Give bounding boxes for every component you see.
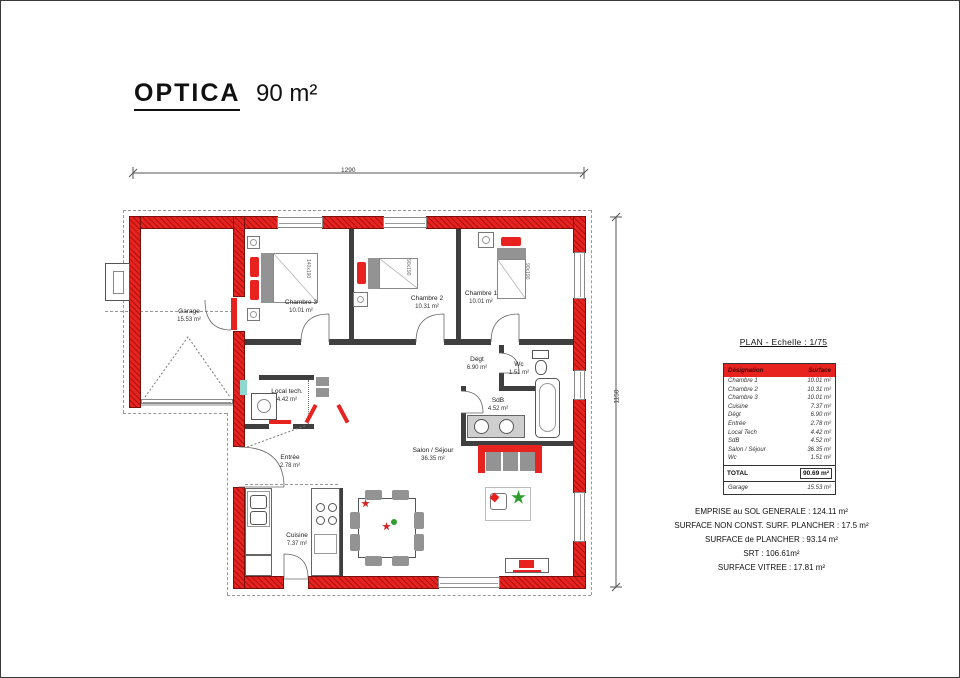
room-label-chambre1: Chambre 1 10.01 m²	[465, 289, 497, 307]
total-value: 90.69 m²	[800, 468, 832, 479]
page-title: OPTICA	[134, 79, 240, 111]
plan-scale-title: PLAN - Echelle : 1/75	[711, 337, 856, 347]
chair	[392, 556, 409, 566]
table-row: Local Tech4.42 m²	[724, 429, 835, 438]
sofa-cushion	[520, 452, 535, 471]
window-sdb	[574, 370, 585, 400]
bay-window-salon-east	[574, 492, 585, 542]
cooktop-burner	[316, 516, 325, 525]
cooktop-burner	[316, 503, 325, 512]
door-leaf-garage	[231, 298, 237, 330]
room-label-chambre2: Chambre 2 10.31 m²	[411, 294, 443, 312]
exterior-wall-right	[573, 298, 586, 371]
row-designation: Local Tech	[728, 429, 757, 438]
chair	[392, 490, 409, 500]
room-label-sdb: SdB 4.52 m²	[488, 396, 508, 414]
bed-chambre3	[273, 253, 318, 303]
boiler-unit	[316, 388, 329, 397]
surface-table: Désignation Surface Chambre 110.01 m² Ch…	[723, 363, 836, 495]
row-designation: Wc	[728, 454, 737, 463]
washing-machine-drum	[257, 399, 271, 413]
partition-ch3-ch2	[349, 229, 354, 339]
table-total-row: TOTAL 90.69 m²	[724, 465, 835, 481]
room-name: Chambre 3	[285, 298, 317, 307]
room-label-localtech: Local tech. 4.42 m²	[271, 387, 302, 405]
garage-value: 15.53 m²	[807, 482, 831, 494]
partition-wc	[499, 345, 504, 353]
row-designation: Chambre 1	[728, 377, 758, 386]
exterior-wall-right	[573, 216, 586, 253]
dimension-width-label: 1290	[339, 167, 357, 174]
total-label: TOTAL	[727, 467, 748, 480]
eaves-outline-left-lower	[227, 413, 228, 595]
sofa-backrest	[478, 445, 542, 452]
sink-bowl	[250, 495, 267, 509]
summary-line: EMPRISE au SOL GENERALE : 124.11 m²	[649, 505, 894, 519]
table-row: Cuisine7.37 m²	[724, 403, 835, 412]
row-surface: 10.01 m²	[807, 377, 831, 386]
bed-size-label: 90x190	[405, 259, 411, 275]
garage-door-opening	[141, 399, 233, 404]
chair	[365, 490, 382, 500]
kitchen-counter-east	[311, 488, 340, 576]
entree-cuisine-boundary	[245, 484, 338, 485]
sofa-armrest	[478, 452, 485, 473]
table-row: Entrée2.78 m²	[724, 420, 835, 429]
chair	[350, 534, 360, 551]
window-chambre1	[574, 252, 585, 299]
bed-pillow	[357, 262, 366, 284]
room-name: Chambre 1	[465, 289, 497, 298]
door-leaf-localtech	[269, 420, 291, 424]
cooktop-burner	[328, 503, 337, 512]
summary-line: SURFACE NON CONST. SURF. PLANCHER : 17.5…	[649, 519, 894, 533]
room-area: 6.90 m²	[467, 364, 487, 373]
row-surface: 4.52 m²	[811, 437, 831, 446]
room-label-wc: Wc 1.51 m²	[509, 360, 529, 378]
door-swing-cuisine	[284, 554, 308, 578]
door-swing-chambre2	[416, 314, 444, 342]
partition-hall	[329, 339, 416, 345]
room-label-degt: Dégt 6.90 m²	[467, 355, 487, 373]
chair	[414, 512, 424, 529]
table-row: Dégt6.90 m²	[724, 411, 835, 420]
room-area: 15.53 m²	[177, 316, 201, 325]
bed-headband	[497, 248, 526, 259]
exterior-wall-bottom	[308, 576, 439, 589]
summary-line: SURFACE VITREE : 17.81 m²	[649, 561, 894, 575]
sink	[499, 419, 514, 434]
toilet-bowl	[535, 360, 547, 375]
row-surface: 10.31 m²	[807, 386, 831, 395]
floor-plan-sheet: OPTICA 90 m² 1290 1150	[0, 0, 960, 678]
room-name: SdB	[488, 396, 508, 405]
table-row: Chambre 210.31 m²	[724, 386, 835, 395]
room-label-chambre3: Chambre 3 10.01 m²	[285, 298, 317, 316]
partition-hall	[444, 339, 491, 345]
partition-ch2-ch1	[456, 229, 461, 339]
partition-hall	[519, 339, 573, 345]
surface-table-header: Désignation Surface	[724, 364, 835, 377]
partition-localtech-bottom	[293, 424, 314, 429]
partition-hall	[245, 339, 301, 345]
window-chambre3	[277, 217, 323, 228]
water-heater	[240, 380, 247, 395]
row-designation: Salon / Séjour	[728, 446, 766, 455]
sofa-cushion	[486, 452, 501, 471]
bed-headband	[368, 258, 379, 289]
room-area: 4.42 m²	[271, 396, 302, 405]
sofa-cushion	[503, 452, 518, 471]
room-label-salon: Salon / Séjour 36.35 m²	[413, 446, 454, 464]
row-designation: Dégt	[728, 411, 741, 420]
row-surface: 10.01 m²	[807, 394, 831, 403]
kitchen-cabinet	[245, 555, 272, 576]
room-name: Wc	[509, 360, 529, 369]
room-area: 10.01 m²	[465, 298, 497, 307]
door-leaf-hall	[336, 404, 349, 424]
row-designation: SdB	[728, 437, 739, 446]
room-name: Cuisine	[286, 531, 308, 540]
dimension-height-label: 1150	[613, 388, 620, 406]
sink	[474, 419, 489, 434]
bed-chambre1	[497, 259, 526, 299]
row-designation: Chambre 3	[728, 394, 758, 403]
door-swing-entree	[239, 447, 284, 487]
toilet-tank	[532, 350, 549, 359]
bed-size-label: 140x190	[305, 259, 311, 278]
eaves-outline-bottom	[227, 595, 591, 596]
room-area: 36.35 m²	[413, 455, 454, 464]
partition-localtech-top	[259, 375, 314, 380]
door-leaf-hall	[305, 404, 318, 424]
room-area: 10.31 m²	[411, 303, 443, 312]
room-label-cuisine: Cuisine 7.37 m²	[286, 531, 308, 549]
room-label-garage: Garage 15.53 m²	[177, 307, 201, 325]
row-designation: Chambre 2	[728, 386, 758, 395]
page-title-area: 90 m²	[256, 80, 317, 108]
door-swing-chambre1	[491, 314, 519, 342]
header-surface: Surface	[808, 364, 831, 377]
room-name: Dégt	[467, 355, 487, 364]
exterior-wall-top	[129, 216, 278, 229]
eaves-outline-top	[123, 210, 591, 211]
bed-headband	[261, 253, 273, 303]
eaves-outline-right	[591, 210, 592, 595]
door-swing-sdb	[461, 391, 483, 413]
boiler-unit	[316, 377, 329, 386]
room-label-entree: Entrée 2.78 m²	[280, 453, 300, 471]
window-chambre2	[383, 217, 427, 228]
door-swing-garage	[205, 300, 231, 330]
bed-chambre2	[379, 258, 418, 289]
garage-west-wall	[129, 216, 141, 408]
oven	[314, 534, 337, 554]
partition-localtech-bottom	[245, 424, 269, 429]
row-surface: 1.51 m²	[811, 454, 831, 463]
summary-line: SRT : 106.61m²	[649, 547, 894, 561]
partition-wc	[499, 373, 504, 386]
bathtub-inner	[539, 383, 556, 432]
table-row: Chambre 310.01 m²	[724, 394, 835, 403]
dimension-line-top	[129, 167, 588, 179]
row-designation: Cuisine	[728, 403, 748, 412]
room-name: Entrée	[280, 453, 300, 462]
plant-symbol	[391, 519, 397, 525]
door-swing-chambre3	[301, 314, 329, 342]
eaves-outline-garage-bottom	[123, 413, 227, 414]
table-row: SdB4.52 m²	[724, 437, 835, 446]
room-area: 4.52 m²	[488, 405, 508, 414]
west-wall	[233, 487, 245, 589]
sink-bowl	[250, 511, 267, 525]
header-designation: Désignation	[728, 364, 763, 377]
table-garage-row: Garage 15.53 m²	[724, 481, 835, 494]
meter-box-inner	[113, 271, 124, 294]
chair	[414, 534, 424, 551]
room-name: Salon / Séjour	[413, 446, 454, 455]
sofa-armrest	[535, 452, 542, 473]
table-row: Chambre 110.01 m²	[724, 377, 835, 386]
bed-pillow	[501, 237, 521, 246]
bed-size-label: 90x190	[524, 263, 530, 279]
west-wall	[233, 216, 245, 297]
cooktop-burner	[328, 516, 337, 525]
partition-wc-sdb	[499, 386, 536, 391]
lamp	[250, 311, 257, 318]
lamp	[250, 239, 257, 246]
surface-summary: EMPRISE au SOL GENERALE : 124.11 m² SURF…	[649, 505, 894, 575]
chair	[350, 512, 360, 529]
exterior-wall-top	[322, 216, 384, 229]
bay-window-salon-south	[438, 577, 500, 588]
room-area: 10.01 m²	[285, 307, 317, 316]
room-area: 2.78 m²	[280, 462, 300, 471]
row-designation: Entrée	[728, 420, 746, 429]
room-area: 7.37 m²	[286, 540, 308, 549]
room-name: Chambre 2	[411, 294, 443, 303]
row-surface: 7.37 m²	[811, 403, 831, 412]
table-row: Wc1.51 m²	[724, 454, 835, 463]
row-surface: 2.78 m²	[811, 420, 831, 429]
garage-door-swing	[145, 337, 230, 397]
section-dashed-line	[105, 311, 233, 312]
chair	[365, 556, 382, 566]
row-surface: 6.90 m²	[811, 411, 831, 420]
garage-label: Garage	[728, 482, 748, 494]
room-name: Garage	[177, 307, 201, 316]
room-area: 1.51 m²	[509, 369, 529, 378]
exterior-wall-right	[573, 399, 586, 493]
room-name: Local tech.	[271, 387, 302, 396]
partition-sdb	[461, 413, 466, 441]
exterior-wall-top	[426, 216, 586, 229]
row-surface: 36.35 m²	[807, 446, 831, 455]
tv-soundbar	[513, 570, 541, 572]
bed-pillow	[250, 257, 259, 277]
summary-line: SURFACE de PLANCHER : 93.14 m²	[649, 533, 894, 547]
lamp	[482, 236, 490, 244]
lamp	[357, 296, 364, 303]
tv	[519, 560, 534, 568]
exterior-wall-bottom	[499, 576, 586, 589]
table-row: Salon / Séjour36.35 m²	[724, 446, 835, 455]
partition-sdb	[461, 386, 466, 391]
row-surface: 4.42 m²	[811, 429, 831, 438]
bed-pillow	[250, 280, 259, 300]
